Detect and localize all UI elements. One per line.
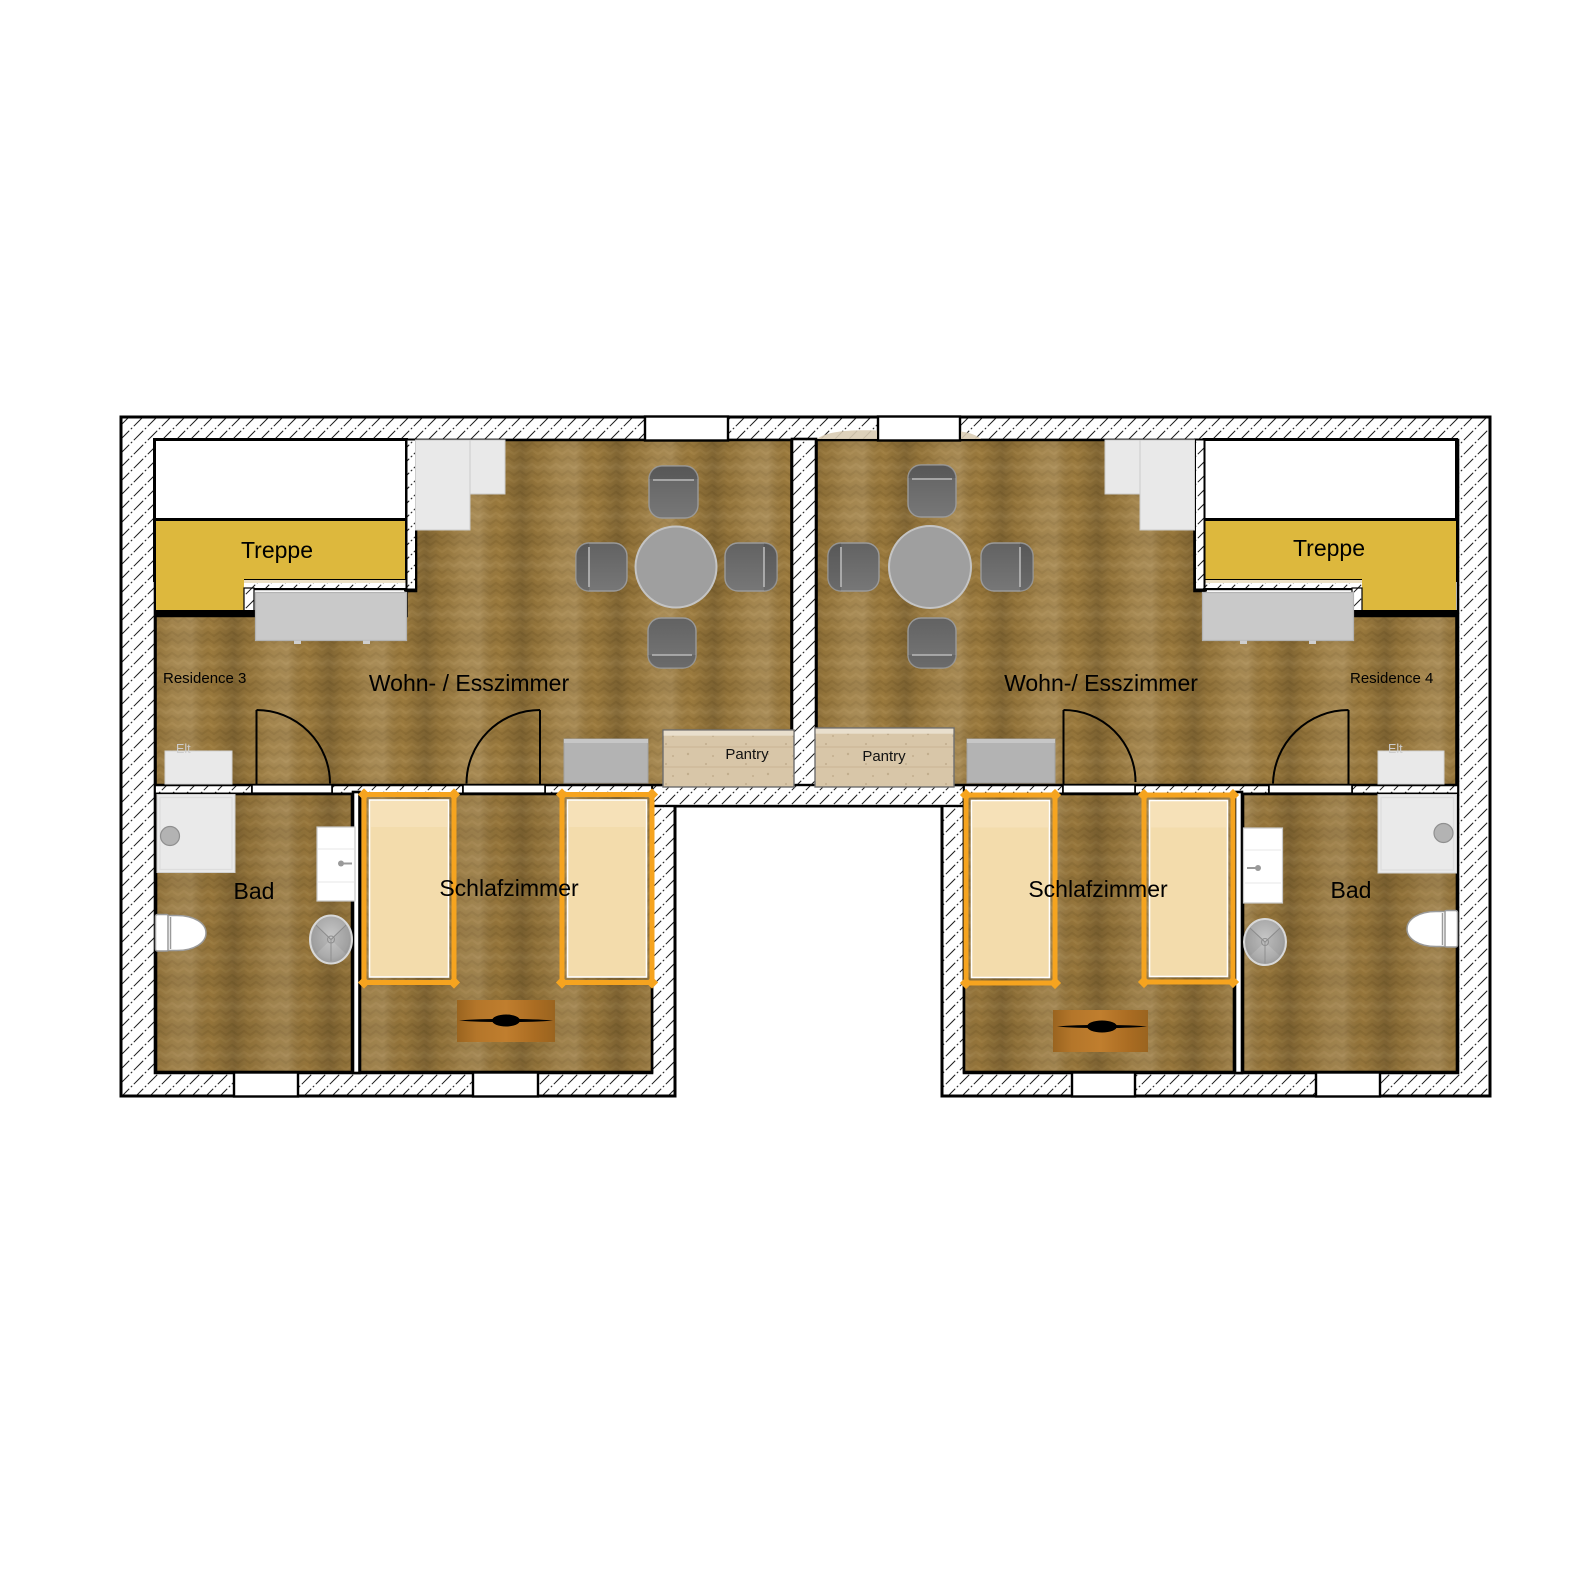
svg-text:Treppe: Treppe <box>241 537 313 563</box>
svg-text:Bad: Bad <box>234 878 275 904</box>
svg-text:Pantry: Pantry <box>862 748 906 765</box>
svg-text:Elt: Elt <box>1388 742 1403 756</box>
svg-text:Wohn-/ Esszimmer: Wohn-/ Esszimmer <box>1004 670 1198 696</box>
svg-text:Bad: Bad <box>1331 877 1372 903</box>
svg-text:Elt: Elt <box>176 742 191 756</box>
svg-text:Schlafzimmer: Schlafzimmer <box>1028 876 1168 902</box>
svg-text:Treppe: Treppe <box>1293 535 1365 561</box>
svg-text:Wohn- / Esszimmer: Wohn- / Esszimmer <box>369 670 570 696</box>
svg-text:Residence 4: Residence 4 <box>1350 670 1433 687</box>
svg-text:Residence 3: Residence 3 <box>163 670 246 687</box>
svg-text:Schlafzimmer: Schlafzimmer <box>439 875 579 901</box>
svg-text:Pantry: Pantry <box>725 746 769 763</box>
